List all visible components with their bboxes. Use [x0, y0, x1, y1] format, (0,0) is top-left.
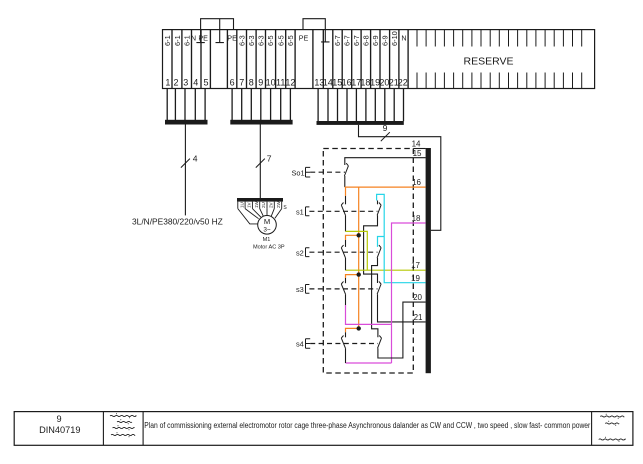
svg-text:10: 10 — [266, 78, 276, 88]
svg-text:15: 15 — [413, 149, 422, 158]
svg-text:6-1: 6-1 — [163, 35, 172, 46]
svg-text:3: 3 — [183, 78, 188, 88]
svg-text:4: 4 — [193, 78, 198, 88]
svg-text:18: 18 — [412, 214, 421, 223]
svg-text:M1: M1 — [263, 237, 271, 243]
svg-text:2W: 2W — [276, 200, 281, 208]
svg-text:8: 8 — [249, 78, 254, 88]
svg-text:4: 4 — [193, 153, 198, 163]
svg-text:6: 6 — [230, 78, 235, 88]
svg-text:16: 16 — [412, 178, 421, 187]
svg-text:17: 17 — [411, 261, 420, 270]
svg-text:6-7: 6-7 — [352, 35, 361, 46]
svg-text:M: M — [264, 217, 270, 226]
svg-text:3L/N/PE380/220/v50 HZ: 3L/N/PE380/220/v50 HZ — [132, 217, 223, 227]
svg-text:6-5: 6-5 — [276, 35, 285, 46]
svg-text:6-3: 6-3 — [247, 35, 256, 46]
svg-text:11: 11 — [276, 78, 285, 88]
svg-text:16: 16 — [342, 78, 352, 88]
svg-text:1U: 1U — [239, 202, 244, 208]
svg-text:6-10: 6-10 — [390, 31, 399, 46]
svg-text:6-9: 6-9 — [380, 35, 389, 46]
svg-text:5: 5 — [203, 78, 208, 88]
svg-text:6-8: 6-8 — [362, 35, 371, 46]
svg-text:2V: 2V — [268, 201, 273, 208]
svg-text:RESERVE: RESERVE — [464, 56, 514, 68]
svg-text:6-5: 6-5 — [266, 35, 275, 46]
svg-text:2U: 2U — [261, 202, 266, 208]
svg-text:6-3: 6-3 — [237, 35, 246, 46]
svg-text:9: 9 — [383, 123, 388, 133]
svg-text:s1: s1 — [296, 208, 304, 217]
svg-text:21: 21 — [414, 313, 423, 322]
svg-text:6-3: 6-3 — [256, 35, 265, 46]
svg-text:PE: PE — [299, 34, 309, 43]
svg-text:14: 14 — [412, 140, 421, 149]
svg-text:Plan of commissioning external: Plan of commissioning external electromo… — [144, 421, 590, 430]
svg-text:6-1: 6-1 — [173, 35, 182, 46]
svg-text:7: 7 — [267, 153, 272, 163]
svg-text:s2: s2 — [296, 248, 304, 257]
svg-text:N: N — [401, 34, 406, 43]
svg-text:6-9: 6-9 — [371, 35, 380, 46]
svg-text:Motor AC 3P: Motor AC 3P — [253, 245, 285, 251]
svg-text:1W: 1W — [254, 200, 259, 208]
svg-text:3~: 3~ — [263, 227, 271, 234]
svg-text:So1: So1 — [291, 168, 304, 177]
svg-text:9: 9 — [258, 78, 263, 88]
svg-text:PE: PE — [198, 34, 208, 43]
svg-text:2: 2 — [173, 78, 178, 88]
svg-text:6-5: 6-5 — [286, 35, 295, 46]
svg-text:7: 7 — [239, 78, 244, 88]
svg-text:22: 22 — [398, 78, 408, 88]
svg-text:DIN40719: DIN40719 — [39, 425, 80, 435]
svg-text:1V: 1V — [247, 201, 252, 208]
svg-text:20: 20 — [413, 293, 422, 302]
svg-text:18: 18 — [360, 78, 370, 88]
svg-text:6-7: 6-7 — [333, 35, 342, 46]
svg-text:12: 12 — [285, 78, 295, 88]
svg-text:s4: s4 — [296, 340, 304, 349]
svg-text:s3: s3 — [296, 285, 304, 294]
svg-text:1: 1 — [165, 78, 170, 88]
svg-text:PE: PE — [227, 34, 237, 43]
svg-text:19: 19 — [411, 274, 420, 283]
svg-text:N: N — [191, 34, 196, 43]
svg-text:9: 9 — [56, 414, 61, 424]
svg-text:6-7: 6-7 — [343, 35, 352, 46]
